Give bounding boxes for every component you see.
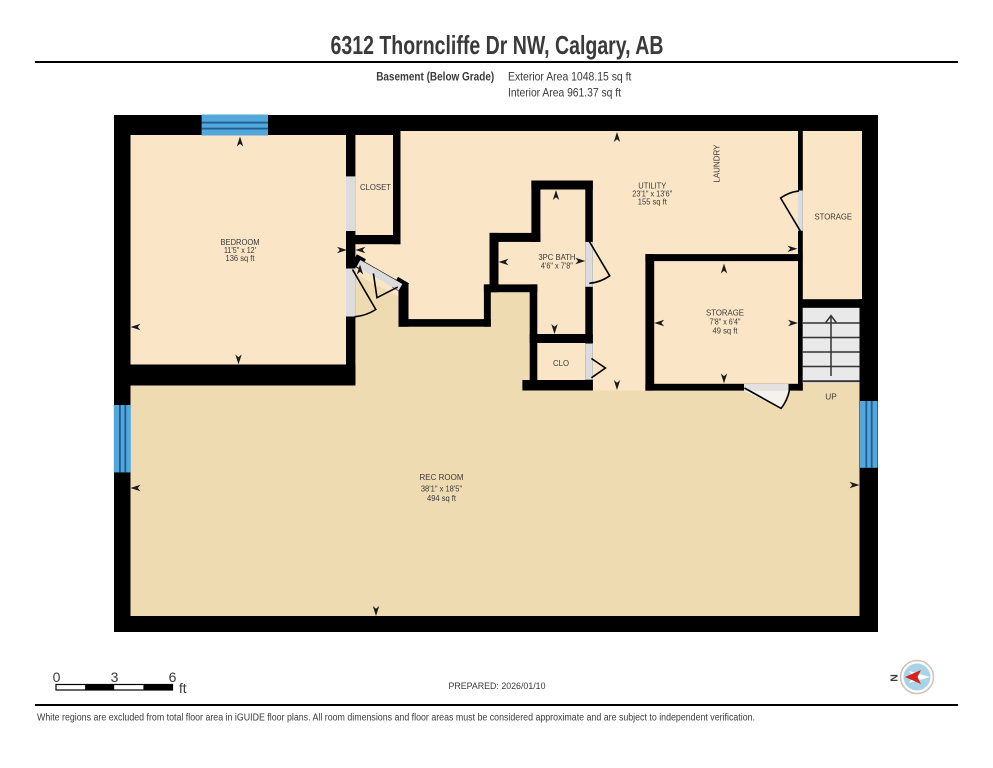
svg-text:49 sq ft: 49 sq ft [713,326,739,336]
svg-text:CLOSET: CLOSET [360,182,391,192]
svg-text:155 sq ft: 155 sq ft [638,196,668,206]
svg-text:Interior Area 961.37 sq ft: Interior Area 961.37 sq ft [508,86,622,100]
svg-text:UP: UP [825,392,837,402]
svg-text:0: 0 [53,669,61,685]
svg-text:6312 Thorncliffe Dr NW, Calgar: 6312 Thorncliffe Dr NW, Calgary, AB [331,30,664,60]
svg-text:LAUNDRY: LAUNDRY [712,144,722,182]
svg-text:White regions are excluded fro: White regions are excluded from total fl… [37,713,755,724]
svg-text:ft: ft [179,681,187,696]
svg-text:REC ROOM: REC ROOM [420,472,464,482]
svg-text:6: 6 [169,669,177,685]
svg-text:4'6" x 7'8": 4'6" x 7'8" [541,261,573,271]
svg-text:136 sq ft: 136 sq ft [226,253,256,263]
svg-text:494 sq ft: 494 sq ft [427,493,457,503]
svg-text:Exterior Area 1048.15 sq ft: Exterior Area 1048.15 sq ft [508,70,632,84]
svg-text:38'1" x 18'5": 38'1" x 18'5" [421,484,462,494]
svg-text:STORAGE: STORAGE [815,212,853,222]
svg-text:3: 3 [111,669,119,685]
svg-text:PREPARED: 2026/01/10: PREPARED: 2026/01/10 [449,681,546,691]
svg-text:CLO: CLO [553,358,570,368]
svg-text:N: N [889,674,901,682]
svg-text:Basement (Below Grade): Basement (Below Grade) [376,70,494,84]
